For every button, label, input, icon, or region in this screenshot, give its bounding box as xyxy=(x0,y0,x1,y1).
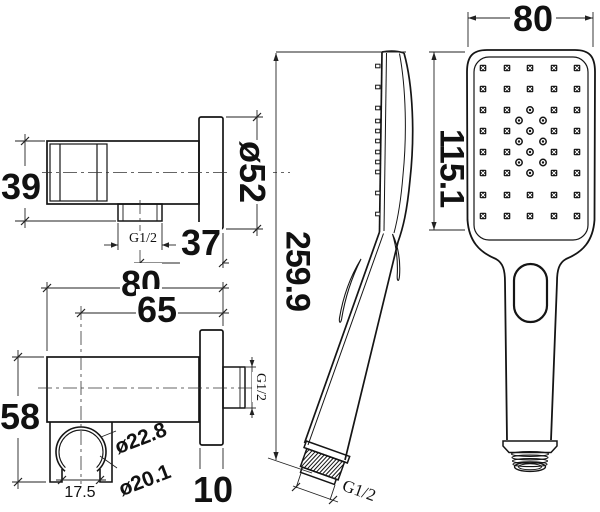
view-outlet-side xyxy=(47,117,223,229)
dim-handset-length: 259.9 xyxy=(278,230,317,312)
nozzle-grid xyxy=(480,65,581,220)
view-outlet-top-dimensions xyxy=(12,282,256,489)
dim-clip-gap: 17.5 xyxy=(63,484,96,502)
dim-flange-thickness: 10 xyxy=(192,469,234,511)
dim-head-width: 80 xyxy=(513,0,553,40)
view-handset-front xyxy=(467,50,595,471)
dim-face-length: 115.1 xyxy=(432,129,471,207)
dim-outlet-offset: 37 xyxy=(180,222,222,264)
thread-hatch xyxy=(294,446,352,484)
dim-bracket-center: 65 xyxy=(136,289,178,331)
technical-drawing: 39 ø52 37 G1/2 80 65 58 ø22.8 ø20.1 17.5… xyxy=(0,0,600,512)
dim-flange-diameter: ø52 xyxy=(231,140,273,204)
dim-outlet-height: 39 xyxy=(0,166,42,208)
dim-bracket-thread: G1/2 xyxy=(252,372,268,402)
dim-outlet-thread: G1/2 xyxy=(128,231,158,247)
spray-nub-row xyxy=(376,64,380,216)
dim-bracket-height: 58 xyxy=(0,396,41,438)
view-outlet-top-centerlines xyxy=(38,306,258,492)
view-outlet-top xyxy=(47,330,245,482)
handle-button xyxy=(514,264,547,322)
